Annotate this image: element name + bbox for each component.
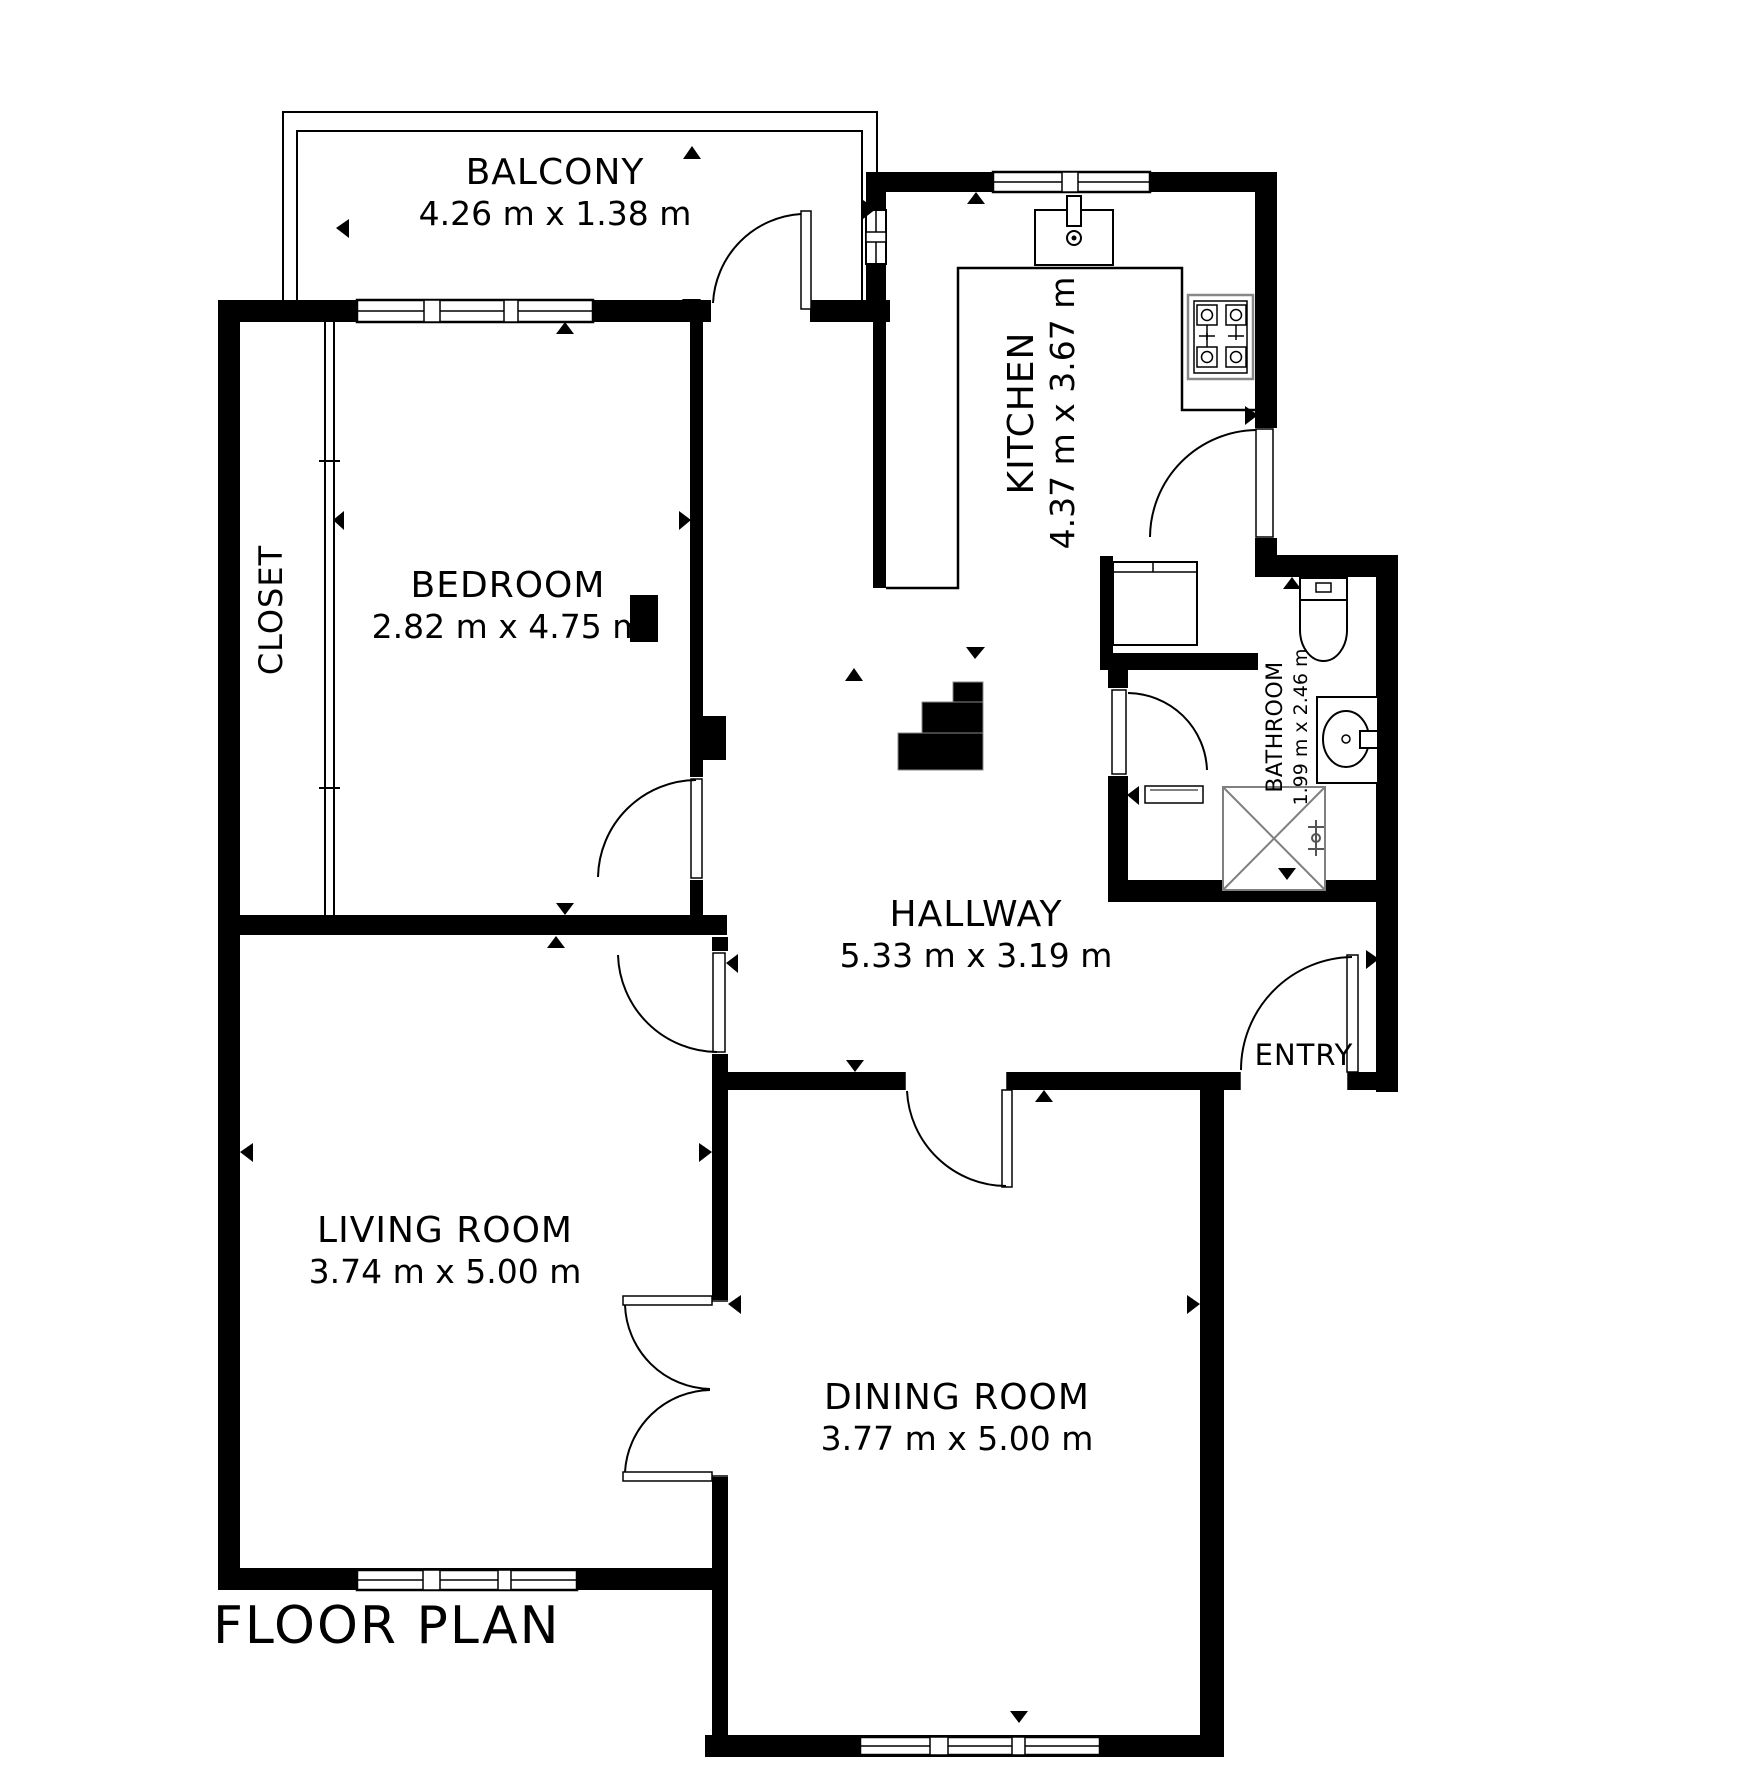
dining-room-door [905, 1072, 1012, 1187]
wall-nub-hallway [703, 716, 726, 760]
marker-up-icon [547, 936, 565, 948]
dining-room-dims: 3.77 m x 5.00 m [757, 1419, 1157, 1459]
door-leaf [1112, 690, 1126, 774]
wall-niche-left [1100, 556, 1113, 670]
kitchen-label: KITCHEN 4.37 m x 3.67 m [1001, 203, 1089, 623]
door-swing-arc [1128, 693, 1207, 770]
marker-left-icon [728, 1295, 741, 1314]
living-room-label: LIVING ROOM 3.74 m x 5.00 m [245, 1210, 645, 1292]
kitchen-side-window [866, 210, 886, 264]
door-leaf [1002, 1090, 1012, 1187]
bathroom-shelf-icon [1145, 786, 1203, 803]
wall-niche-bottom [1100, 653, 1258, 670]
plan-title: FLOOR PLAN [213, 1596, 561, 1656]
marker-up-icon [556, 322, 574, 334]
stair-step [898, 733, 983, 770]
bedroom-window [357, 300, 593, 322]
marker-up-icon [1035, 1090, 1053, 1102]
marker-left-icon [336, 219, 349, 238]
toilet-flush [1316, 583, 1331, 592]
door-leaf [801, 211, 811, 309]
marker-down-icon [1010, 1711, 1028, 1723]
balcony-dims: 4.26 m x 1.38 m [355, 194, 755, 234]
marker-down-icon [966, 647, 985, 659]
door-swing-arc [625, 1305, 710, 1389]
door-leaf [623, 1472, 712, 1481]
marker-down-icon [556, 903, 574, 915]
hallway-name: HALLWAY [776, 894, 1176, 936]
kitchen-window [993, 172, 1150, 192]
stair-step [953, 682, 983, 702]
bathroom-sink-icon [1317, 697, 1378, 783]
marker-down-icon [846, 1060, 864, 1072]
wall-kitchen-right-upper [1255, 172, 1277, 430]
door-swing-arc [625, 1390, 710, 1472]
bedroom-label: BEDROOM 2.82 m x 4.75 m [308, 565, 708, 647]
balcony-name: BALCONY [355, 152, 755, 194]
door-leaf [623, 1296, 712, 1305]
bedroom-door [598, 777, 703, 880]
marker-left-icon [1127, 786, 1139, 805]
washer-icon [1113, 562, 1197, 645]
door-swing-arc [618, 955, 717, 1052]
marker-up-icon [845, 668, 863, 681]
bathroom-door [1108, 688, 1207, 776]
marker-left-icon [240, 1143, 253, 1162]
closet-name: CLOSET [250, 510, 292, 710]
wall-dining-right [1200, 1072, 1224, 1757]
balcony-label: BALCONY 4.26 m x 1.38 m [355, 152, 755, 234]
kitchen-door [1150, 428, 1277, 538]
kitchen-dims: 4.37 m x 3.67 m [1043, 203, 1083, 623]
door-leaf [691, 779, 702, 878]
dining-room-window [860, 1737, 1100, 1755]
kitchen-name: KITCHEN [1001, 203, 1043, 623]
marker-right-icon [1187, 1295, 1200, 1314]
hallway-dims: 5.33 m x 3.19 m [776, 936, 1176, 976]
wall-left-exterior [218, 300, 240, 1590]
door-leaf [713, 953, 725, 1052]
stair-step [922, 702, 983, 733]
bathroom-label: BATHROOM 1.99 m x 2.46 m [1262, 622, 1314, 832]
living-dining-double-door [623, 1296, 728, 1481]
wall-right-exterior [1376, 555, 1398, 1092]
door-leaf [1256, 429, 1273, 537]
stairs-icon [898, 682, 983, 770]
door-swing-arc [598, 780, 696, 877]
wall-counter-partition [873, 320, 886, 588]
stove-icon [1188, 295, 1253, 379]
bedroom-dims: 2.82 m x 4.75 m [308, 607, 708, 647]
door-swing-arc [1150, 430, 1256, 537]
dining-room-label: DINING ROOM 3.77 m x 5.00 m [757, 1377, 1157, 1459]
floor-plan: BALCONY 4.26 m x 1.38 m KITCHEN 4.37 m x… [0, 0, 1753, 1779]
living-room-door [618, 951, 728, 1054]
bedroom-name: BEDROOM [308, 565, 708, 607]
bathroom-dims: 1.99 m x 2.46 m [1289, 622, 1314, 832]
entry-label: ENTRY [1204, 1038, 1404, 1072]
dining-room-name: DINING ROOM [757, 1377, 1157, 1419]
living-room-window [357, 1570, 577, 1590]
marker-right-icon [679, 511, 691, 530]
sink-tap [1360, 731, 1378, 748]
hallway-label: HALLWAY 5.33 m x 3.19 m [776, 894, 1176, 976]
marker-right-icon [699, 1143, 712, 1162]
living-room-dims: 3.74 m x 5.00 m [245, 1252, 645, 1292]
marker-up-icon [1283, 577, 1301, 589]
marker-up-icon [967, 192, 985, 204]
door-swing-arc [907, 1091, 1006, 1186]
closet-label: CLOSET [250, 510, 290, 710]
living-room-name: LIVING ROOM [245, 1210, 645, 1252]
bathroom-name: BATHROOM [1262, 622, 1289, 832]
wall-bedroom-living-divider [218, 915, 727, 935]
floor-plan-canvas [0, 0, 1753, 1779]
